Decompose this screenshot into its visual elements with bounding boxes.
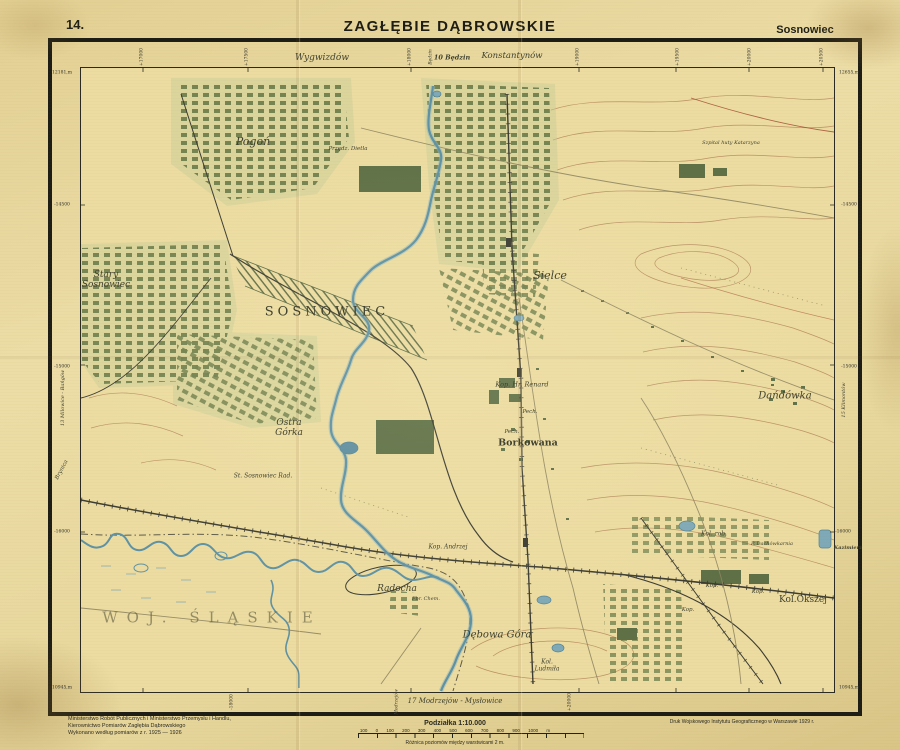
grid-left-2: -14500: [54, 202, 70, 207]
grid-top-2: +17500: [244, 48, 249, 66]
map-label-kop-andrzej: Kop. Andrzej: [428, 545, 467, 552]
grid-left-5: 10945,m: [52, 685, 72, 690]
grid-bottom-2: +20000: [567, 693, 572, 711]
map-canvas: [81, 68, 834, 692]
grid-right-5: 10945,m: [839, 685, 859, 690]
scale-note: Różnica poziomów między warstwicami 2 m.: [406, 740, 505, 746]
grid-top-5: +19500: [675, 48, 680, 66]
map-label-borkowana: Borkowana: [498, 439, 558, 450]
grid-top-3: +18000: [407, 48, 412, 66]
map-label-stary-sosnowiec: Stary Sosnowiec: [82, 270, 130, 290]
neighbor-right-vertical: 15 Klimontów: [842, 382, 848, 417]
map-label-pogon: Pogoń: [236, 136, 270, 148]
map-label-kol-okszej: Kol.Okszej: [779, 595, 827, 605]
neighbor-top-center: 10 Będzin: [434, 54, 470, 61]
map-label-pech-1: Pech.: [522, 409, 537, 415]
credit-line-3: Wykonano według pomiarów z r. 1925 — 192…: [68, 730, 231, 737]
map-neatline: [80, 67, 835, 693]
publisher-credits: Ministerstwo Robót Publicznych i Ministe…: [68, 716, 231, 737]
page-title: ZAGŁĘBIE DĄBROWSKIE: [344, 18, 557, 35]
map-label-szpital: Szpital huty Katarzyna: [702, 141, 760, 147]
grid-top-1: +17000: [139, 48, 144, 66]
grid-left-4: -16000: [54, 529, 70, 534]
map-label-sielce: Sielce: [533, 270, 567, 282]
scale-bar: [358, 733, 584, 738]
neighbor-bottom-vertical: Modrzejów: [394, 689, 399, 714]
map-label-kop-1: Kop.: [706, 583, 719, 589]
map-label-kol-rob: Kol. rob.: [701, 532, 727, 539]
grid-top-4: +19000: [575, 48, 580, 66]
grid-top-6: +20000: [747, 48, 752, 66]
road-dest-kazimierz: Kazimierz: [834, 546, 862, 552]
credit-line-2: Kierownictwo Pomiarów Zagłębia Dąbrowski…: [68, 723, 231, 730]
grid-bottom-1: -18000: [229, 694, 234, 710]
neighbor-top-left: Wygwizdów: [295, 53, 349, 63]
map-label-woj-slaskie: WOJ. ŚLĄSKIE: [102, 610, 322, 627]
grid-right-1: 12655,m: [839, 70, 859, 75]
sheet-number: 14.: [66, 17, 84, 32]
neighbor-left-vertical: 13 Milowice - Bańgów: [61, 370, 67, 426]
neighbor-bottom-center: 17 Modrzejów - Mysłowice: [408, 698, 503, 706]
map-label-przedz-dietla: Przędz. Dietla: [328, 146, 367, 152]
map-label-debowa-gora: Dębowa Góra: [463, 629, 532, 640]
grid-left-1: 12181,m: [52, 70, 72, 75]
credit-line-1: Ministerstwo Robót Publicznych i Ministe…: [68, 716, 231, 723]
map-label-kop-3: Kop.: [682, 607, 695, 613]
map-label-radocha: Radocha: [377, 584, 417, 594]
grid-top-7: +20500: [819, 48, 824, 66]
map-label-p-dachowkarnia: P. Dachówkarnia: [751, 542, 793, 548]
grid-right-3: -15000: [841, 364, 857, 369]
map-label-ostra-gorka: Ostra Górka: [275, 418, 303, 438]
map-label-pech-2: Pech.: [504, 429, 519, 435]
map-label-fbr-chem: Fbr. Chem.: [412, 597, 440, 603]
map-label-kop-2: Kop.: [752, 589, 765, 595]
neighbor-top-right: Konstantynów: [481, 52, 542, 62]
map-label-st-sosnowiec-rad: St. Sosnowiec Rad.: [234, 474, 292, 481]
scale-title: Podziałka 1:10.000: [424, 720, 486, 727]
map-label-sosnowiec: SOSNOWIEC: [265, 306, 389, 321]
grid-right-4: -16000: [835, 529, 851, 534]
map-label-kop-hr-renard: Kop. Hr. Renard: [495, 381, 548, 388]
grid-left-3: -15000: [54, 364, 70, 369]
map-label-kol-ludmila: Kol. Ludmiła: [535, 659, 560, 672]
map-label-dandowka: Dańdówka: [758, 390, 811, 401]
grid-right-2: -14500: [841, 202, 857, 207]
print-credit: Druk Wojskowego Instytutu Geograficznego…: [670, 719, 815, 725]
sheet-name: Sosnowiec: [776, 24, 833, 36]
map-sheet: 14. ZAGŁĘBIE DĄBROWSKIE Sosnowiec: [0, 0, 900, 750]
neighbor-top-vertical: Będzin: [428, 49, 433, 65]
